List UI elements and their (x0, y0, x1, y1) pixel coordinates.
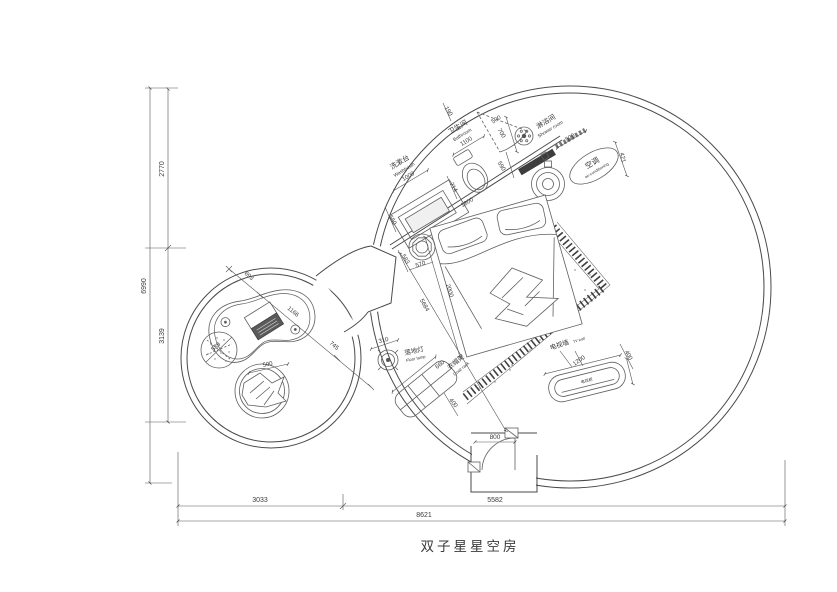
shower-label: 淋浴间 Shower room (531, 110, 564, 139)
dim-coat-rack-length: 660 (435, 359, 447, 370)
dim-overall-height: 6990 (141, 278, 148, 294)
dim-washbasin-depth: 550 (387, 215, 398, 227)
plan-title: 双子星星空房 (421, 539, 520, 554)
dim-table-length: 1166 (286, 306, 300, 319)
entry-opening (472, 446, 536, 491)
washbasin-label: 洗漱台 Washbasin 1000 (380, 148, 428, 191)
dim-width-left: 3033 (252, 497, 268, 504)
dim-table-gap: 693 (243, 271, 255, 282)
laptop (244, 302, 283, 340)
dim-height-top: 2770 (159, 161, 166, 177)
ac-label: 空调 air-conditioning (564, 141, 624, 192)
ac-unit (532, 161, 565, 201)
dim-overall-width: 8621 (416, 512, 432, 519)
tv-wall-label-en: TV wall (573, 336, 586, 344)
passage-opening-big (363, 243, 387, 313)
dim-height-mid: 3139 (159, 328, 166, 344)
round-chair (235, 364, 289, 418)
dim-stool-depth: 570 (415, 260, 427, 269)
tv-wall-label-cn: 电视墙 (549, 337, 571, 352)
passage-opening-small (311, 276, 363, 338)
tv-cabinet: 电视柜 (545, 354, 633, 405)
dim-width-right: 5582 (487, 497, 503, 504)
dim-tv-depth: 400 (623, 350, 633, 362)
dim-coat-rack-depth: 400 (447, 398, 458, 410)
tv-wall-leader (560, 351, 572, 367)
floor-plan-canvas: 800 (0, 0, 837, 592)
dim-passage-width: 745 (328, 341, 340, 352)
dim-bathroom-gap: 190 (443, 106, 454, 118)
kidney-table (202, 283, 322, 368)
dim-ac-offset: 421 (618, 152, 627, 164)
left-dimension-column: 6990 2770 3139 (141, 88, 186, 483)
tv-wall-label: 电视墙 TV wall (549, 332, 586, 352)
dim-bath-door-swing: 500 (491, 115, 503, 126)
dim-entry-door-label: 800 (490, 434, 501, 441)
floor-lamp-label: 落地灯 Floor lamp (403, 344, 426, 363)
dim-stool-width: 583 (400, 254, 411, 266)
bedside-stool (409, 234, 435, 260)
dim-lamp-diameter: 310 (378, 337, 390, 346)
tv-cabinet-label: 电视柜 (580, 376, 593, 385)
dim-bathroom-depth: 700 (496, 128, 507, 140)
blanket (242, 373, 286, 407)
bathroom-label: 卫生间 Bathroom 1100 (440, 114, 484, 155)
